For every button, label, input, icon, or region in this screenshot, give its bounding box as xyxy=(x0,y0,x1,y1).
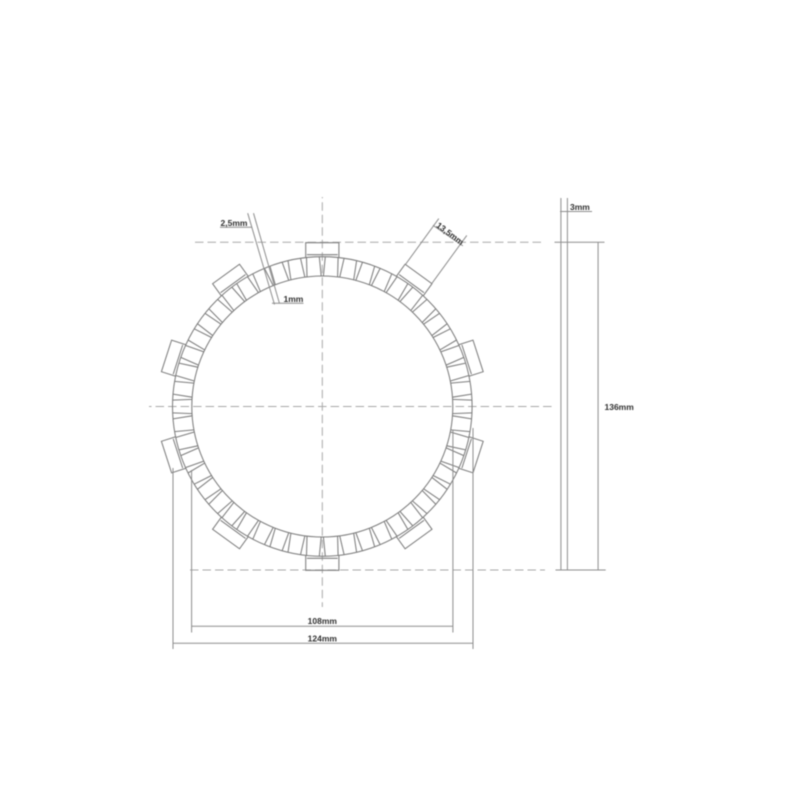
svg-text:3mm: 3mm xyxy=(570,202,590,212)
svg-text:2,5mm: 2,5mm xyxy=(221,218,248,228)
svg-text:136mm: 136mm xyxy=(605,402,635,412)
svg-text:124mm: 124mm xyxy=(308,634,338,644)
svg-text:108mm: 108mm xyxy=(308,616,338,626)
svg-text:1mm: 1mm xyxy=(284,294,304,304)
